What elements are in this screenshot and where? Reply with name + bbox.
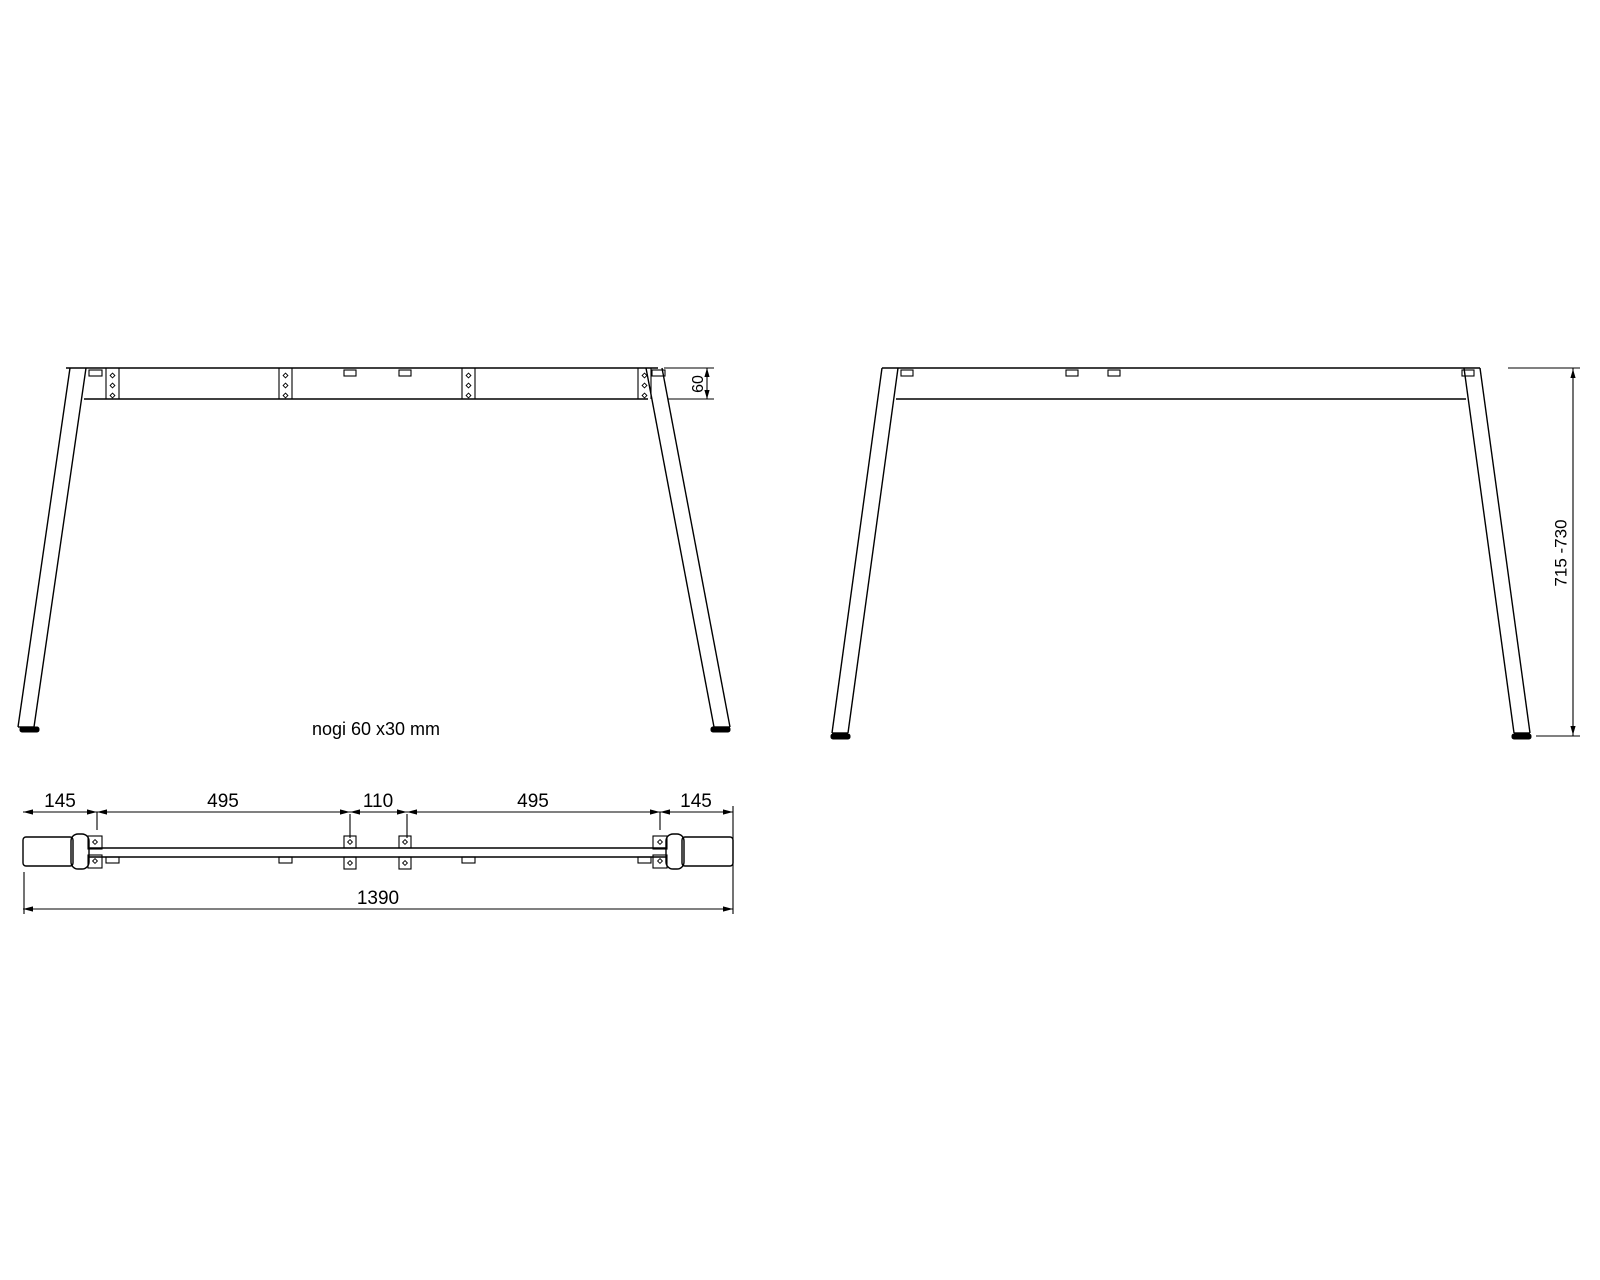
technical-drawing-page: 60 nogi 60 x30 mm 715 -730 — [0, 0, 1600, 1280]
rail-slot — [1108, 370, 1120, 376]
dimension-chain: 145 495 110 495 145 — [23, 791, 733, 838]
right-foot-pad — [1512, 734, 1531, 739]
total-width-label: 1390 — [357, 888, 399, 909]
segment-label-145-left: 145 — [44, 791, 76, 812]
plate — [88, 836, 102, 849]
dimension-rail-height: 60 — [664, 368, 714, 399]
rail-slot — [1066, 370, 1078, 376]
mounting-plate — [462, 368, 475, 399]
segment-label-145-right: 145 — [680, 791, 712, 812]
tab — [462, 857, 475, 863]
plate — [344, 857, 356, 869]
right-foot-pad — [711, 727, 730, 732]
left-leg-top — [23, 837, 73, 866]
mounting-plate — [279, 368, 292, 399]
tab — [279, 857, 292, 863]
leg-height-range-label: 715 -730 — [1551, 519, 1570, 586]
dimension-total-width: 1390 — [23, 806, 733, 914]
plan-body — [23, 834, 733, 869]
rail-slot — [344, 370, 356, 376]
segment-label-495-left: 495 — [207, 791, 239, 812]
right-leg-top — [682, 837, 733, 866]
left-foot-pad — [831, 734, 850, 739]
segment-label-495-right: 495 — [517, 791, 549, 812]
plate — [653, 836, 667, 849]
tab — [106, 857, 119, 863]
left-foot-pad — [20, 727, 39, 732]
plate — [399, 857, 411, 869]
segment-label-110: 110 — [363, 791, 393, 812]
rail-slot — [89, 370, 102, 376]
dimension-leg-height: 715 -730 — [1508, 368, 1580, 736]
tab — [638, 857, 651, 863]
rail-height-label: 60 — [690, 375, 707, 393]
mounting-plate — [106, 368, 119, 399]
plan-view: 145 495 110 495 145 — [23, 791, 733, 914]
plate — [399, 836, 411, 848]
side-view: 715 -730 — [831, 368, 1580, 739]
legs-note-label: nogi 60 x30 mm — [312, 719, 440, 739]
front-view: 60 nogi 60 x30 mm — [18, 368, 730, 739]
cad-drawing-svg: 60 nogi 60 x30 mm 715 -730 — [0, 0, 1600, 1280]
rail-slot — [901, 370, 913, 376]
rail-slot — [399, 370, 411, 376]
